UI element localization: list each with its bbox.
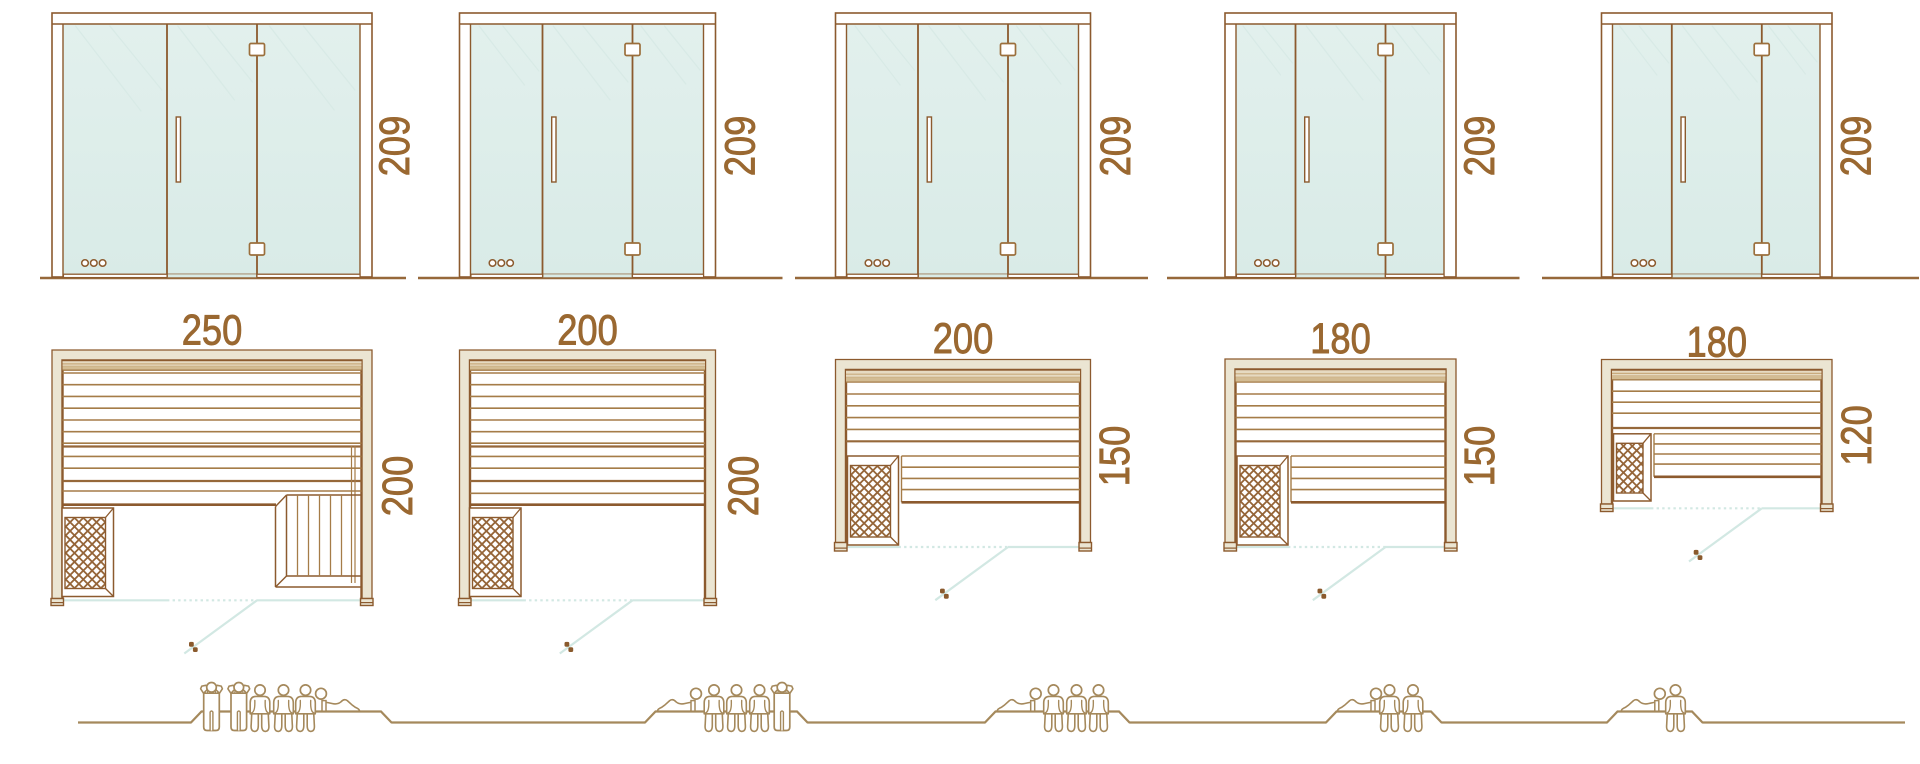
svg-text:150: 150: [1091, 426, 1138, 487]
svg-text:209: 209: [717, 116, 764, 177]
svg-text:250: 250: [182, 307, 243, 354]
svg-text:209: 209: [1092, 116, 1139, 177]
svg-text:200: 200: [720, 456, 767, 517]
svg-text:209: 209: [371, 116, 418, 177]
svg-text:200: 200: [374, 456, 421, 517]
svg-text:120: 120: [1833, 405, 1880, 466]
svg-text:180: 180: [1687, 319, 1748, 366]
svg-text:209: 209: [1456, 116, 1503, 177]
svg-text:209: 209: [1833, 116, 1880, 177]
svg-text:180: 180: [1310, 315, 1371, 362]
svg-text:200: 200: [933, 315, 994, 362]
svg-text:150: 150: [1456, 426, 1503, 487]
svg-text:200: 200: [557, 307, 618, 354]
